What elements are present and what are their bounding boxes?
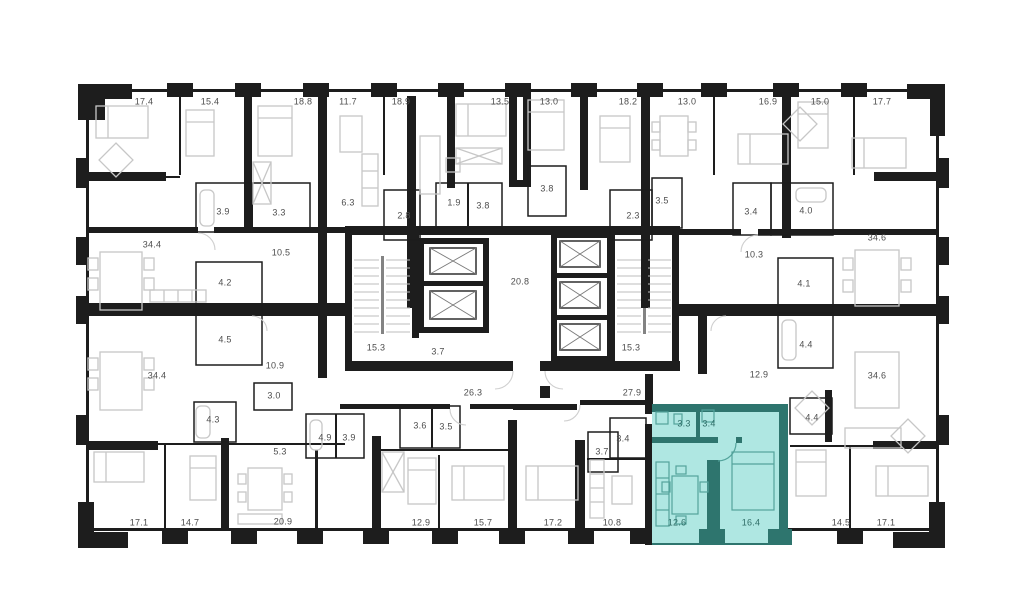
room-area-label: 34.4 — [148, 372, 167, 381]
floor-plan-drawing — [0, 0, 1024, 604]
room-area-label: 16.9 — [759, 98, 778, 107]
room-area-label: 10.9 — [266, 362, 285, 371]
room-area-label: 4.3 — [206, 416, 219, 425]
room-area-label: 17.1 — [877, 519, 896, 528]
room-area-label: 3.7 — [595, 448, 608, 457]
room-area-label: 12.6 — [668, 519, 687, 528]
room-area-label: 4.9 — [318, 434, 331, 443]
room-area-label: 3.4 — [744, 208, 757, 217]
room-area-label: 10.3 — [745, 251, 764, 260]
room-area-label: 14.5 — [832, 519, 851, 528]
interior-walls — [86, 92, 939, 545]
room-area-label: 27.9 — [623, 389, 642, 398]
room-area-label: 4.0 — [799, 207, 812, 216]
room-area-label: 5.3 — [273, 448, 286, 457]
room-area-label: 3.9 — [216, 208, 229, 217]
room-area-label: 4.4 — [799, 341, 812, 350]
room-area-label: 3.3 — [272, 209, 285, 218]
room-area-label: 15.7 — [474, 519, 493, 528]
room-area-label: 16.4 — [742, 519, 761, 528]
room-area-label: 18.9 — [392, 98, 411, 107]
room-area-label: 2.8 — [397, 212, 410, 221]
floor-plan: 17.415.418.811.718.913.513.018.213.016.9… — [0, 0, 1024, 604]
room-area-label: 34.4 — [143, 241, 162, 250]
room-area-label: 3.4 — [702, 420, 715, 429]
room-area-label: 15.3 — [622, 344, 641, 353]
room-area-label: 4.1 — [797, 280, 810, 289]
room-area-label: 4.5 — [218, 336, 231, 345]
room-area-label: 3.9 — [342, 434, 355, 443]
room-area-label: 13.5 — [491, 98, 510, 107]
room-area-label: 14.7 — [181, 519, 200, 528]
room-area-label: 3.8 — [476, 202, 489, 211]
room-area-label: 12.9 — [750, 371, 769, 380]
room-area-label: 15.4 — [201, 98, 220, 107]
room-area-label: 26.3 — [464, 389, 483, 398]
room-area-label: 3.8 — [540, 185, 553, 194]
room-area-label: 6.3 — [341, 199, 354, 208]
room-area-label: 13.0 — [678, 98, 697, 107]
room-area-label: 17.4 — [135, 98, 154, 107]
room-area-label: 17.2 — [544, 519, 563, 528]
room-area-label: 15.0 — [811, 98, 830, 107]
room-area-label: 11.7 — [339, 98, 357, 107]
room-area-label: 34.6 — [868, 234, 887, 243]
room-area-label: 3.6 — [413, 422, 426, 431]
stairs — [354, 256, 671, 334]
room-area-label: 3.4 — [616, 435, 629, 444]
room-area-label: 13.0 — [540, 98, 559, 107]
room-area-label: 3.0 — [267, 392, 280, 401]
room-area-label: 20.8 — [511, 278, 530, 287]
room-area-label: 10.5 — [272, 249, 291, 258]
room-area-label: 18.8 — [294, 98, 313, 107]
room-area-label: 3.5 — [439, 423, 452, 432]
room-area-label: 18.2 — [619, 98, 638, 107]
room-area-label: 17.1 — [130, 519, 149, 528]
room-area-label: 3.5 — [655, 197, 668, 206]
room-area-label: 3.3 — [677, 420, 690, 429]
room-area-label: 1.9 — [447, 199, 460, 208]
room-area-label: 4.2 — [218, 279, 231, 288]
room-area-label: 20.9 — [274, 518, 293, 527]
room-area-label: 12.9 — [412, 519, 431, 528]
room-area-label: 3.7 — [431, 348, 444, 357]
room-area-label: 4.4 — [805, 414, 818, 423]
room-area-label: 10.8 — [603, 519, 622, 528]
room-area-label: 15.3 — [367, 344, 386, 353]
elevators — [430, 241, 600, 350]
room-area-label: 17.7 — [873, 98, 892, 107]
room-area-label: 34.6 — [868, 372, 887, 381]
room-area-label: 2.3 — [626, 212, 639, 221]
